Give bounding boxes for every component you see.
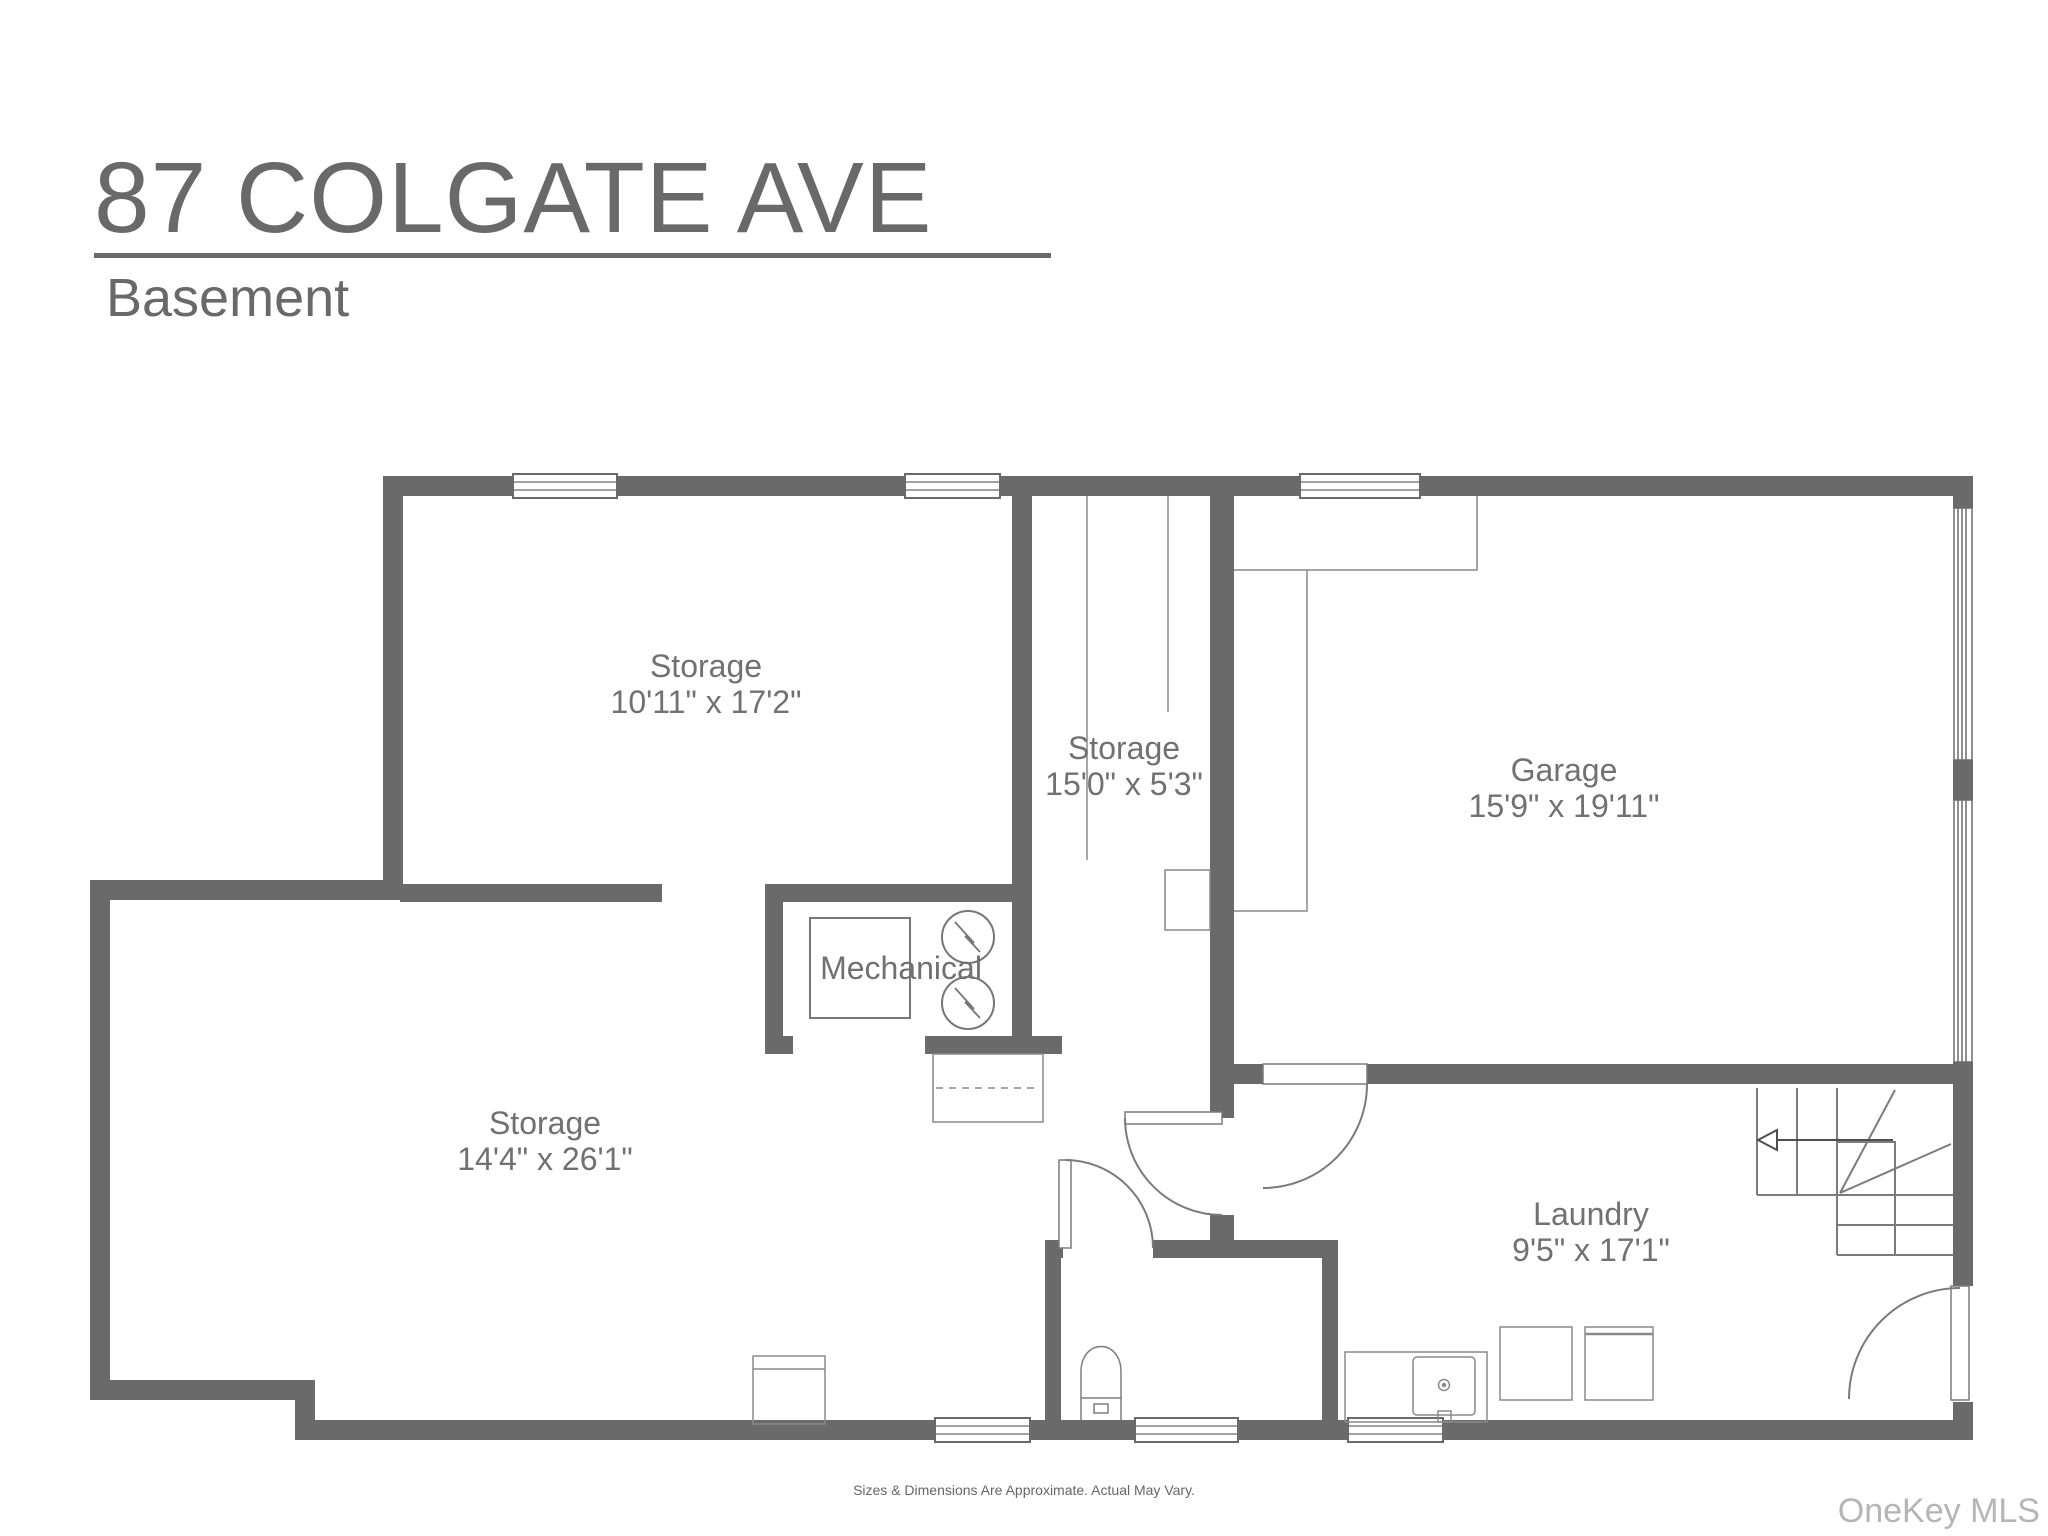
room-dims: 15'0" x 5'3" xyxy=(1045,766,1203,802)
door-bathroom xyxy=(1059,1160,1153,1248)
wall-storage-bottom-a xyxy=(400,884,662,902)
wall-step-horizontal xyxy=(90,880,400,900)
room-name: Storage xyxy=(457,1105,633,1141)
wall-left-upper xyxy=(383,476,403,900)
room-dims: 10'11" x 17'2" xyxy=(611,684,802,720)
room-label-mechanical: Mechanical xyxy=(820,950,982,986)
wall-bottom-step-h xyxy=(90,1380,315,1400)
room-name: Storage xyxy=(1045,730,1203,766)
room-label-storage-lower: Storage 14'4" x 26'1" xyxy=(457,1105,633,1177)
wall-mechanical-bottom-a xyxy=(765,1036,793,1054)
room-label-laundry: Laundry 9'5" x 17'1" xyxy=(1512,1196,1670,1268)
washer-dryer-fixtures xyxy=(1500,1327,1653,1400)
door-laundry-from-garage xyxy=(1263,1064,1367,1188)
window xyxy=(905,474,1000,498)
garage-storage-outline xyxy=(1234,496,1477,911)
garage-door-panel xyxy=(1954,800,1972,1062)
room-name: Laundry xyxy=(1512,1196,1670,1232)
wall-garage-bottom-b xyxy=(1367,1064,1973,1084)
wall-left-lower xyxy=(90,880,110,1400)
laundry-sink-fixture xyxy=(1345,1352,1487,1422)
freezer-fixture xyxy=(753,1356,825,1424)
room-dims: 15'9" x 19'11" xyxy=(1469,788,1660,824)
window xyxy=(513,474,617,498)
crawlspace-hatch xyxy=(933,1054,1043,1122)
garage-door-panel xyxy=(1954,508,1972,760)
wall-garage-bottom-a xyxy=(1234,1064,1263,1084)
walls xyxy=(90,476,1973,1440)
floor-plan-page: 87 COLGATE AVE Basement xyxy=(0,0,2048,1536)
wall-bath-top-b xyxy=(1153,1240,1338,1258)
wall-bath-right xyxy=(1322,1240,1338,1424)
stairs xyxy=(1757,1088,1953,1255)
room-dims: 9'5" x 17'1" xyxy=(1512,1232,1670,1268)
wall-corridor-left xyxy=(1012,476,1032,1052)
washer xyxy=(1500,1327,1572,1400)
window xyxy=(1135,1418,1238,1442)
floor-plan xyxy=(0,0,2048,1536)
wall-corridor-right xyxy=(1210,476,1234,1118)
dryer xyxy=(1585,1327,1653,1400)
corridor-shelf xyxy=(1165,870,1210,930)
room-dims: 14'4" x 26'1" xyxy=(457,1141,633,1177)
corridor-closet-lines xyxy=(1087,496,1210,930)
wall-bath-left xyxy=(1045,1240,1061,1424)
footer-disclaimer: Sizes & Dimensions Are Approximate. Actu… xyxy=(853,1482,1195,1498)
room-label-garage: Garage 15'9" x 19'11" xyxy=(1469,752,1660,824)
wall-mechanical-bottom-b xyxy=(925,1036,1062,1054)
room-name: Storage xyxy=(611,648,802,684)
window xyxy=(935,1418,1030,1442)
watermark: OneKey MLS xyxy=(1838,1492,2040,1531)
room-label-storage-upper: Storage 10'11" x 17'2" xyxy=(611,648,802,720)
wall-storage-bottom-b xyxy=(765,884,1032,902)
wall-mechanical-left xyxy=(765,884,783,1054)
toilet-fixture xyxy=(1081,1347,1121,1421)
door-exterior-rear xyxy=(1849,1286,1969,1400)
room-name: Garage xyxy=(1469,752,1660,788)
room-label-storage-middle: Storage 15'0" x 5'3" xyxy=(1045,730,1203,802)
room-name: Mechanical xyxy=(820,950,982,986)
wall-top xyxy=(383,476,1973,496)
window xyxy=(1300,474,1420,498)
